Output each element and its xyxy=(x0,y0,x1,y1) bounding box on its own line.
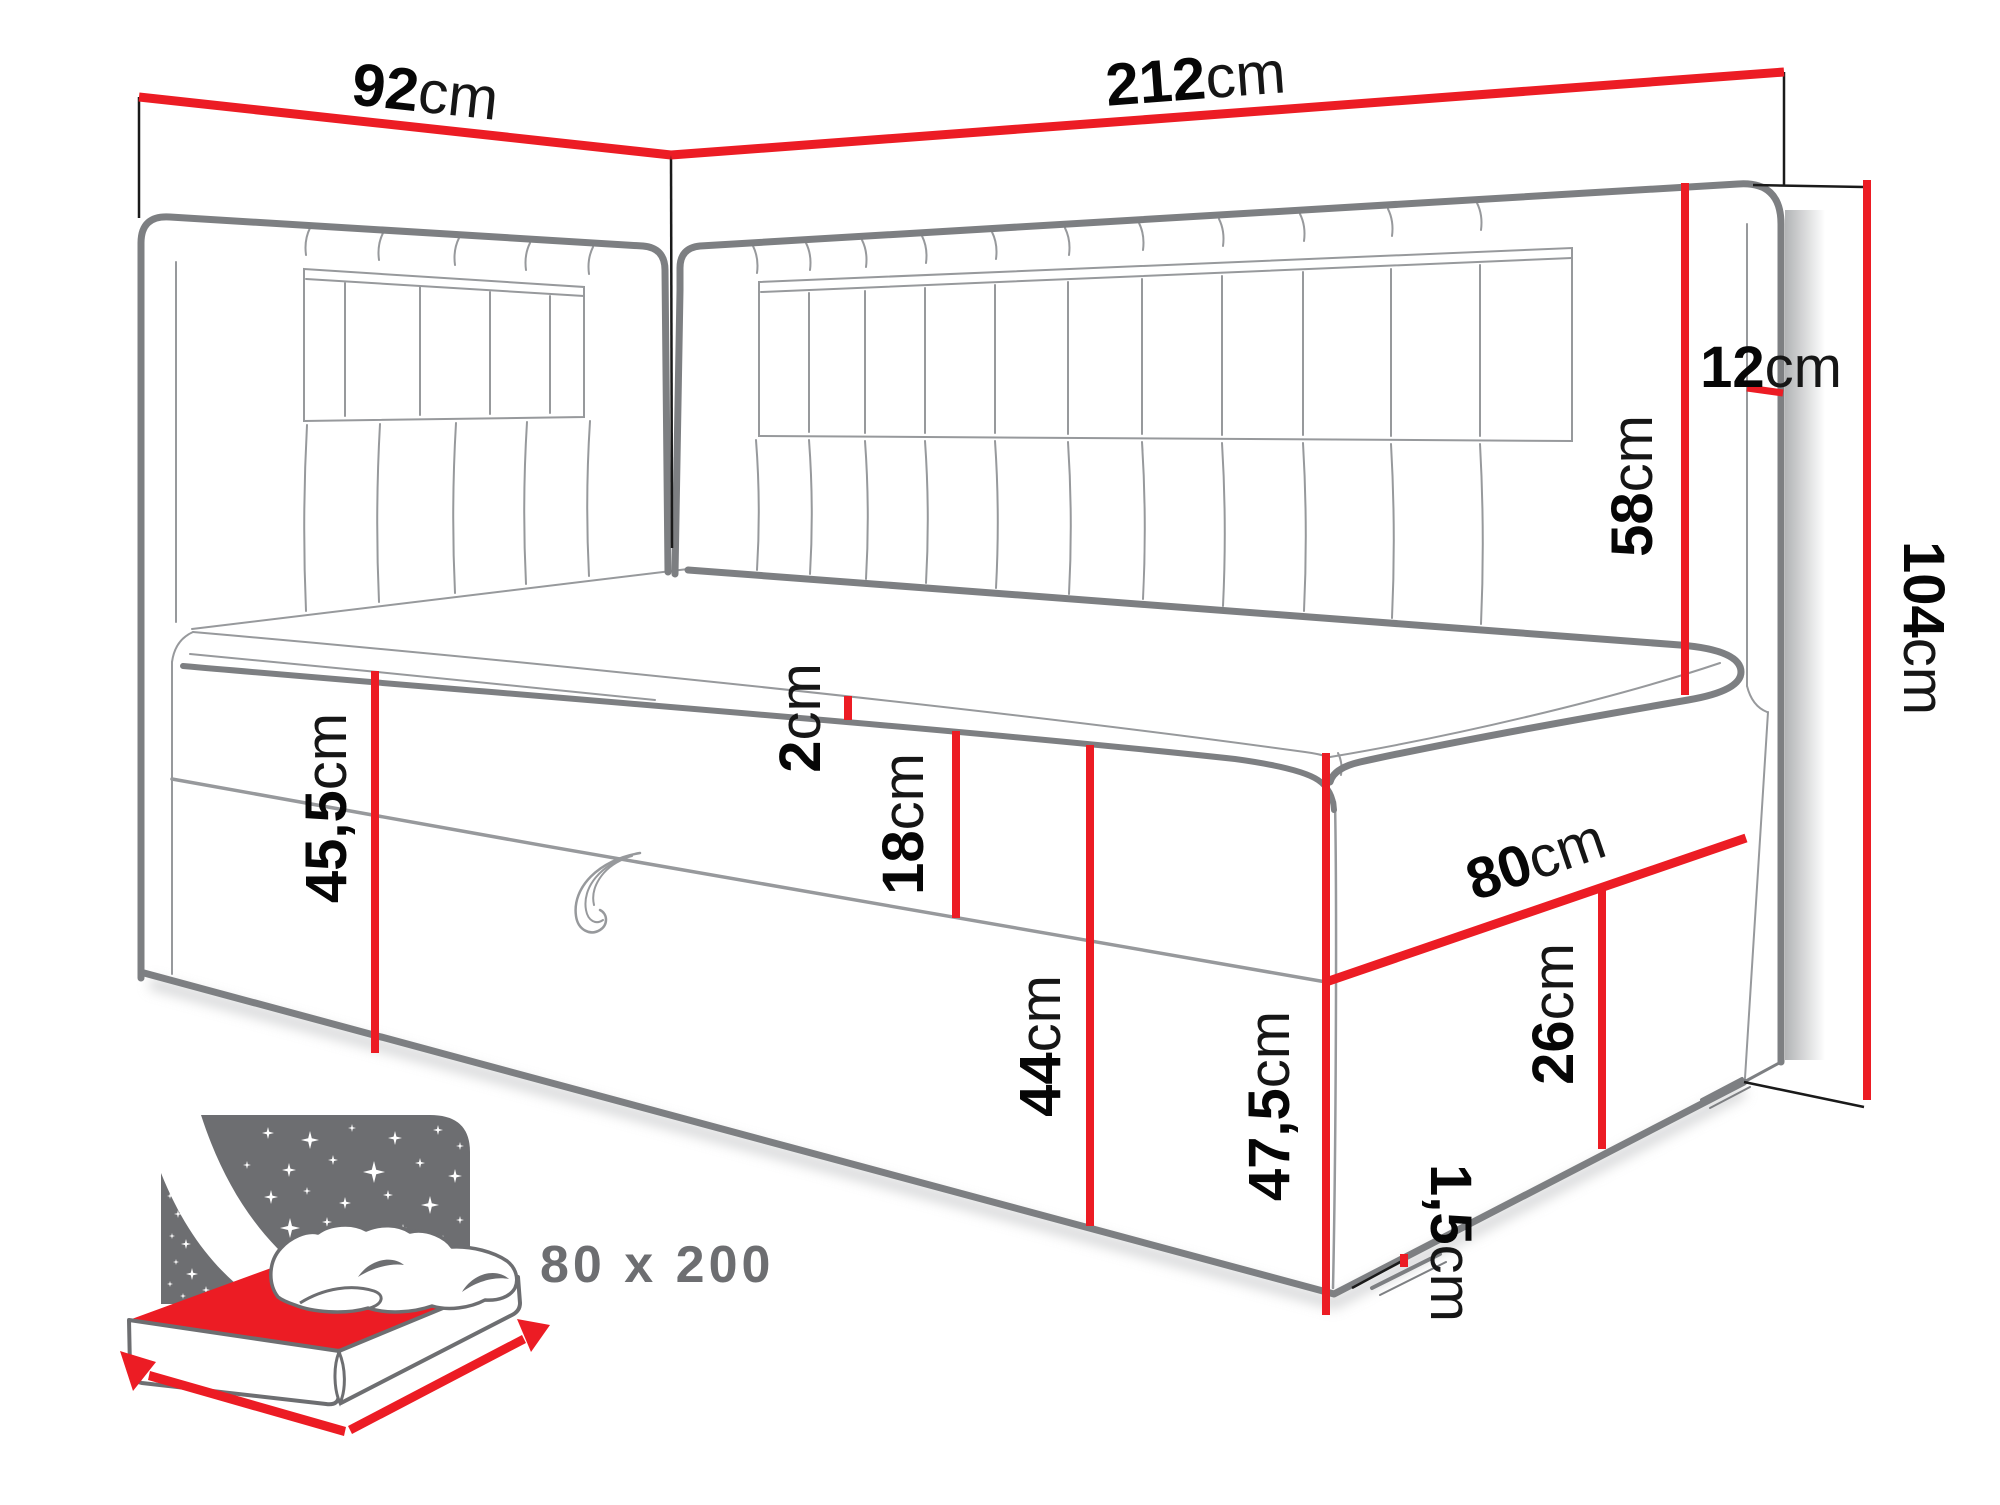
svg-text:58cm: 58cm xyxy=(1600,415,1665,557)
svg-text:18cm: 18cm xyxy=(871,753,936,895)
svg-text:26cm: 26cm xyxy=(1521,943,1586,1085)
svg-text:47,5cm: 47,5cm xyxy=(1237,1011,1302,1201)
svg-text:104cm: 104cm xyxy=(1891,541,1956,715)
svg-text:1,5cm: 1,5cm xyxy=(1418,1164,1483,1322)
svg-text:44cm: 44cm xyxy=(1008,975,1073,1117)
svg-text:2cm: 2cm xyxy=(768,663,833,773)
svg-text:45,5cm: 45,5cm xyxy=(294,713,359,903)
svg-text:212cm: 212cm xyxy=(1103,38,1288,118)
svg-text:80 x 200: 80 x 200 xyxy=(540,1236,774,1294)
svg-text:12cm: 12cm xyxy=(1700,335,1842,400)
